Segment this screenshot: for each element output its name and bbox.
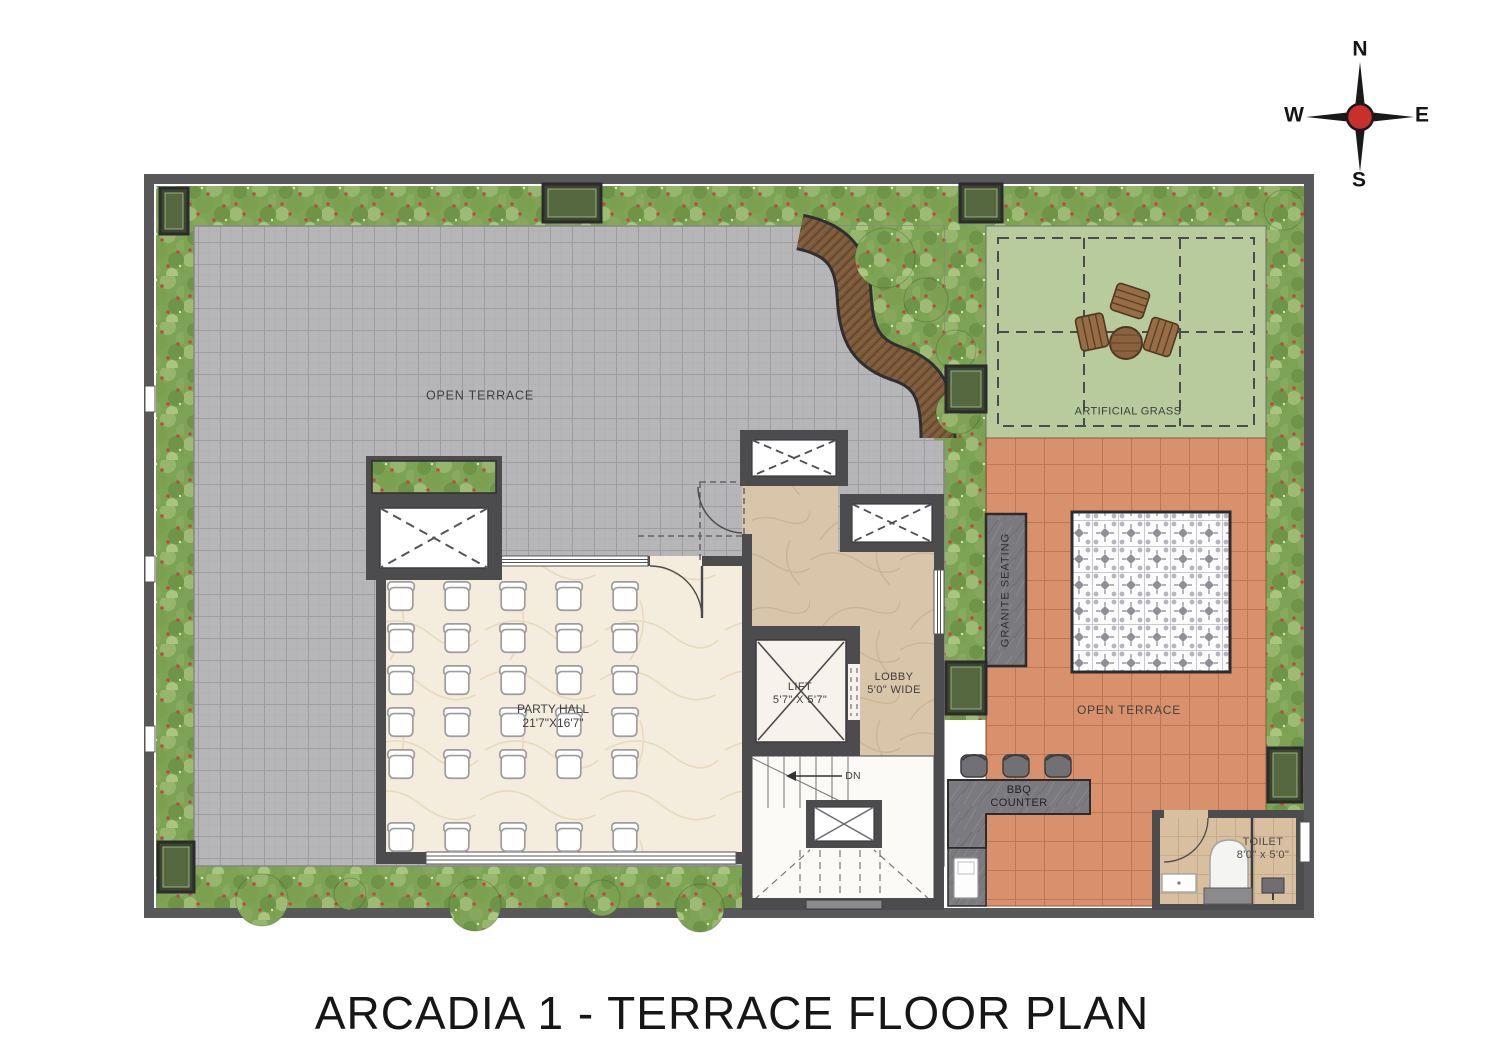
toilet-dim: 8'0" x 5'0" [1237,849,1290,862]
stairs-dn-label: DN [845,770,861,782]
bbq-counter-label: BBQ COUNTER [990,784,1047,810]
page-title: ARCADIA 1 - TERRACE FLOOR PLAN [0,986,1464,1040]
compass-south-label: S [1352,169,1366,194]
artificial-grass-label: ARTIFICIAL GRASS [1075,406,1182,419]
decorative-tile-inlay [1072,512,1230,672]
compass-rose [1306,62,1414,172]
compass-north-label: N [1352,38,1367,63]
floor-plan-drawing [0,0,1500,1061]
lift-name: LIFT [773,681,827,694]
toilet-name: TOILET [1237,836,1290,849]
party-hall-dim: 21'7"X16'7" [517,716,589,730]
open-terrace-right-label: OPEN TERRACE [1077,703,1181,717]
compass-east-label: E [1415,104,1429,129]
bbq-stools [961,755,1071,777]
bbq-line1: BBQ [990,784,1047,797]
party-hall-name: PARTY HALL [517,702,589,716]
lift-dim: 5'7" X 5'7" [773,694,827,707]
compass-west-label: W [1284,104,1304,129]
lift-label: LIFT 5'7" X 5'7" [773,681,827,707]
open-terrace-left-label: OPEN TERRACE [426,389,534,404]
lobby-name: LOBBY [867,671,921,684]
bbq-line2: COUNTER [990,797,1047,810]
lobby-label: LOBBY 5'0" WIDE [867,671,921,697]
party-hall-label: PARTY HALL 21'7"X16'7" [517,702,589,730]
granite-seating-label: GRANITE SEATING [1000,533,1013,647]
lobby-dim: 5'0" WIDE [867,684,921,697]
floor-plan-page: OPEN TERRACE PARTY HALL 21'7"X16'7" LIFT… [0,0,1500,1061]
toilet-label: TOILET 8'0" x 5'0" [1237,836,1290,862]
